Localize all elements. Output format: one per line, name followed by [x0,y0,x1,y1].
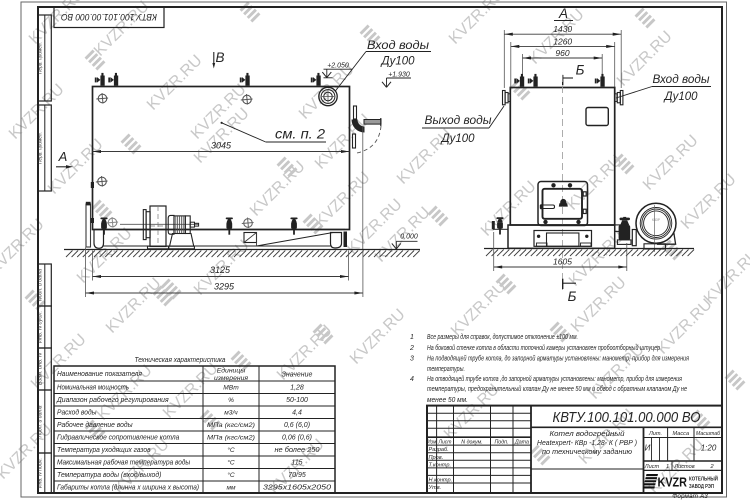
svg-text:Максимальная рабочая температу: Максимальная рабочая температура воды [57,459,191,467]
svg-text:В: В [215,50,224,65]
svg-text:температуры, предохранительный: температуры, предохранительный клапан Ду… [427,385,687,393]
svg-text:Heatexpert- КВр -1,28- К ( РВР: Heatexpert- КВр -1,28- К ( РВР ) [537,440,637,447]
svg-text:МПа (кгс/см2): МПа (кгс/см2) [207,422,255,429]
svg-text:KVZR.RU: KVZR.RU [347,306,409,368]
svg-text:1: 1 [666,464,669,470]
svg-text:KVZR.RU: KVZR.RU [144,52,206,114]
svg-text:1430: 1430 [553,24,572,34]
svg-text:На подводящей трубе котла, до: На подводящей трубе котла, до запорной а… [427,355,689,363]
svg-text:3045: 3045 [211,141,232,151]
svg-text:0,06 (0,6): 0,06 (0,6) [282,435,312,442]
svg-text:Вход воды: Вход воды [367,40,430,52]
svg-text:Подп. и дата: Подп. и дата [38,405,44,437]
svg-text:КВТУ.100.101.00.000 ВО: КВТУ.100.101.00.000 ВО [60,11,157,22]
svg-text:Котел водогрейный: Котел водогрейный [550,430,625,438]
svg-text:KVZR: KVZR [658,475,688,490]
svg-text:А: А [558,6,568,21]
svg-text:Расход воды: Расход воды [57,409,97,417]
svg-text:70/95: 70/95 [288,472,306,479]
svg-text:Листов: Листов [673,464,694,470]
svg-text:Т.контр.: Т.контр. [429,462,452,468]
svg-text:Все размеры для справок, допус: Все размеры для справок, допустимое откл… [427,333,578,341]
svg-text:Подп.: Подп. [494,440,508,446]
svg-text:Номинальная мощность: Номинальная мощность [57,385,129,392]
svg-text:Вход воды: Вход воды [653,74,711,86]
svg-text:Ду100: Ду100 [440,133,476,145]
svg-text:мм: мм [226,484,236,491]
svg-text:KVZR.RU: KVZR.RU [654,296,716,358]
svg-text:3295х1605х2050: 3295х1605х2050 [263,484,331,491]
svg-text:1260: 1260 [553,36,572,46]
svg-text:KVZR.RU: KVZR.RU [640,132,702,194]
svg-text:KVZR.RU: KVZR.RU [91,0,153,60]
svg-text:KVZR.RU: KVZR.RU [247,158,309,220]
svg-text:°С: °С [227,471,235,479]
svg-text:+1.930: +1.930 [388,71,410,78]
svg-text:А: А [58,149,68,164]
svg-text:м3/ч: м3/ч [224,410,238,417]
svg-text:Техническая характеристика: Техническая характеристика [135,355,226,364]
svg-text:И: И [645,444,651,453]
svg-text:не более 250: не более 250 [275,446,320,454]
svg-text:Перв. примен.: Перв. примен. [38,132,44,164]
svg-text:+2.050: +2.050 [327,63,349,70]
svg-text:Н.контр.: Н.контр. [429,478,453,484]
svg-text:КВТУ.100.101.00.000 ВО: КВТУ.100.101.00.000 ВО [553,409,701,426]
svg-text:МВт: МВт [223,385,239,392]
svg-text:3125: 3125 [210,265,231,275]
svg-text:KVZR.RU: KVZR.RU [478,178,540,240]
svg-text:2: 2 [709,464,714,470]
svg-text:Лист: Лист [644,464,660,470]
svg-text:Единицы: Единицы [217,367,245,375]
svg-text:см. п. 2: см. п. 2 [275,127,326,142]
svg-text:Ду100: Ду100 [380,56,416,68]
svg-text:Инв. N подл.: Инв. N подл. [38,458,44,488]
svg-text:Гидравлическое сопротивление к: Гидравлическое сопротивление котла [57,434,179,442]
svg-text:KVZR.RU: KVZR.RU [448,278,510,340]
svg-text:температуры.: температуры. [427,366,465,373]
svg-text:КВЗР: КВЗР [652,218,660,222]
svg-text:1,28: 1,28 [290,385,304,392]
svg-text:Значение: Значение [282,372,313,379]
svg-text:KVZR.RU: KVZR.RU [0,421,56,483]
svg-text:Температура уходящих газов: Температура уходящих газов [57,446,151,454]
svg-text:4,4: 4,4 [292,410,302,417]
svg-text:960: 960 [555,48,569,58]
svg-text:Пров.: Пров. [429,455,444,461]
svg-text:0,6 (6,0): 0,6 (6,0) [284,422,310,429]
svg-text:Формат А3: Формат А3 [672,493,708,500]
svg-text:KVZR.RU: KVZR.RU [678,171,740,233]
svg-text:измерения: измерения [214,375,248,382]
svg-text:Масса: Масса [673,431,690,437]
svg-text:Наименование показателя: Наименование показателя [57,371,142,378]
svg-text:1605: 1605 [553,257,572,267]
svg-text:3295: 3295 [214,282,235,292]
svg-text:Разраб.: Разраб. [429,447,449,453]
svg-text:KVZR.RU: KVZR.RU [45,136,107,198]
svg-text:1: 1 [410,334,414,341]
svg-text:50-100: 50-100 [286,397,308,404]
svg-text:1:20: 1:20 [701,444,717,453]
svg-text:KVZR.RU: KVZR.RU [160,360,222,422]
svg-text:МПа (кгс/см2): МПа (кгс/см2) [207,435,255,442]
svg-text:ЗАВОД РЭП: ЗАВОД РЭП [689,484,714,490]
svg-text:Лит.: Лит. [648,431,662,437]
svg-text:Габариты котла (длинна х ширин: Габариты котла (длинна х ширина х высота… [57,483,199,491]
svg-text:менее 50 мм.: менее 50 мм. [427,397,468,404]
svg-text:KVZR.RU: KVZR.RU [103,275,165,337]
svg-text:Инв. N дубл.: Инв. N дубл. [38,311,44,343]
svg-text:°С: °С [227,446,235,454]
svg-text:Б: Б [576,63,585,78]
svg-text:%: % [228,397,234,404]
svg-text:Изм: Изм [427,440,436,446]
svg-text:KVZR.RU: KVZR.RU [0,216,48,278]
svg-text:°С: °С [227,459,235,467]
svg-text:3: 3 [410,356,414,363]
svg-text:Перв. примен.: Перв. примен. [38,42,44,74]
svg-text:Масштаб: Масштаб [696,431,721,437]
svg-text:На боковой стенке котла в обла: На боковой стенке котла в области топочн… [427,344,660,352]
svg-text:Дата: Дата [514,440,529,446]
svg-text:4: 4 [410,376,414,383]
svg-text:КОТЕЛЬНЫЙ: КОТЕЛЬНЫЙ [689,475,718,483]
svg-text:Б: Б [568,289,577,304]
svg-text:2: 2 [409,345,414,352]
svg-text:KVZR.RU: KVZR.RU [701,246,750,308]
svg-text:Рабочее давление воды: Рабочее давление воды [57,421,133,429]
svg-text:N докум.: N докум. [461,440,482,446]
svg-text:На отводящей трубе котла ,до з: На отводящей трубе котла ,до запорной ар… [427,375,682,383]
svg-text:115: 115 [291,460,302,467]
svg-text:Подп. и дата: Подп. и дата [38,269,44,301]
svg-text:Лист: Лист [438,440,453,446]
svg-text:0.000: 0.000 [400,234,418,241]
svg-text:KVZR.RU: KVZR.RU [312,169,374,231]
svg-text:Взам. инв. N: Взам. инв. N [38,353,44,385]
svg-text:Выход воды: Выход воды [425,115,493,127]
svg-text:Ду100: Ду100 [663,91,699,103]
svg-text:по техническому заданию: по техническому заданию [542,448,633,456]
svg-text:Утв.: Утв. [428,485,442,491]
svg-text:Диапазон рабочего регулировани: Диапазон рабочего регулирования [56,396,169,404]
svg-text:Температура воды (вход/выход): Температура воды (вход/выход) [57,471,161,479]
